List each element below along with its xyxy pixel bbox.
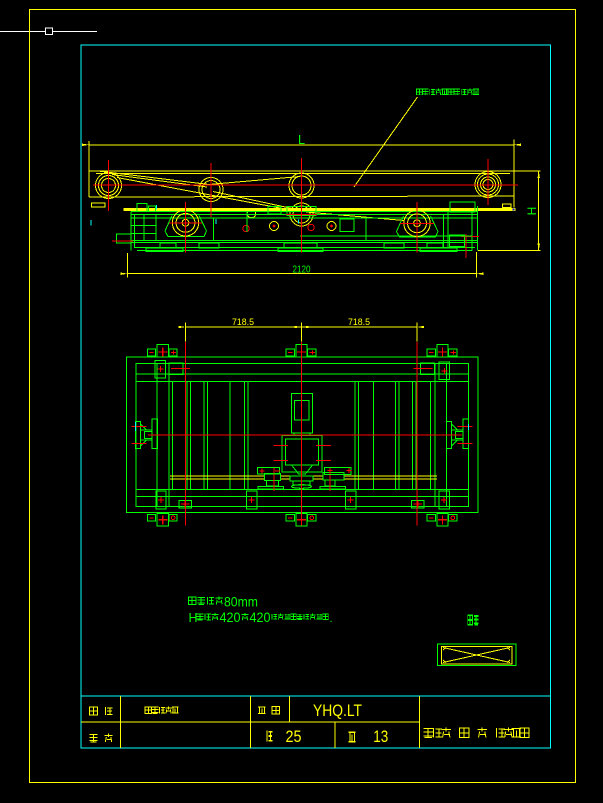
svg-text:H: H	[189, 611, 198, 625]
svg-text:13: 13	[373, 727, 388, 746]
svg-text:2120: 2120	[293, 263, 311, 275]
svg-text:718.5: 718.5	[348, 317, 370, 328]
svg-text:25: 25	[286, 727, 302, 746]
svg-text:H: H	[525, 207, 539, 216]
svg-text:YHQ.LT: YHQ.LT	[313, 701, 362, 720]
svg-text:420: 420	[220, 610, 241, 625]
svg-text:L: L	[298, 133, 305, 147]
svg-text:80mm: 80mm	[224, 594, 258, 610]
svg-text:.: .	[330, 613, 333, 625]
svg-text:420: 420	[250, 610, 271, 625]
svg-text:718.5: 718.5	[232, 317, 254, 328]
